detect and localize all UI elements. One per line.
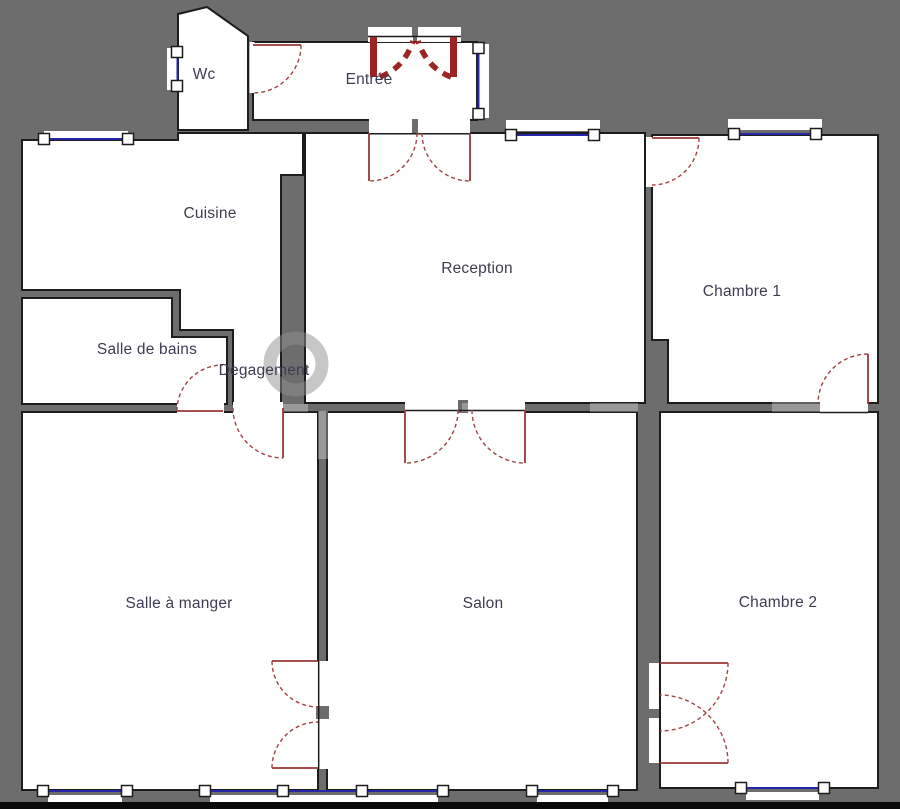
room-label-cuisine: Cuisine: [183, 205, 236, 223]
room-label-chambre-2: Chambre 2: [739, 594, 817, 612]
room-label-wc: Wc: [193, 66, 216, 84]
room-label-chambre-1: Chambre 1: [703, 283, 781, 301]
room-label-salon: Salon: [463, 595, 504, 613]
floor-plan-drawing: [0, 0, 900, 809]
room-label-degagement: Degagement: [219, 362, 310, 380]
floor-plan: Wc Entrée Cuisine Reception Chambre 1 Sa…: [0, 0, 900, 809]
room-label-salle-a-manger: Salle à manger: [125, 595, 232, 613]
image-bottom-edge: [0, 802, 900, 809]
room-label-salle-de-bains: Salle de bains: [97, 341, 197, 359]
room-chambre-1: [652, 135, 878, 403]
room-label-entree: Entrée: [346, 71, 393, 89]
room-label-reception: Reception: [441, 260, 513, 278]
